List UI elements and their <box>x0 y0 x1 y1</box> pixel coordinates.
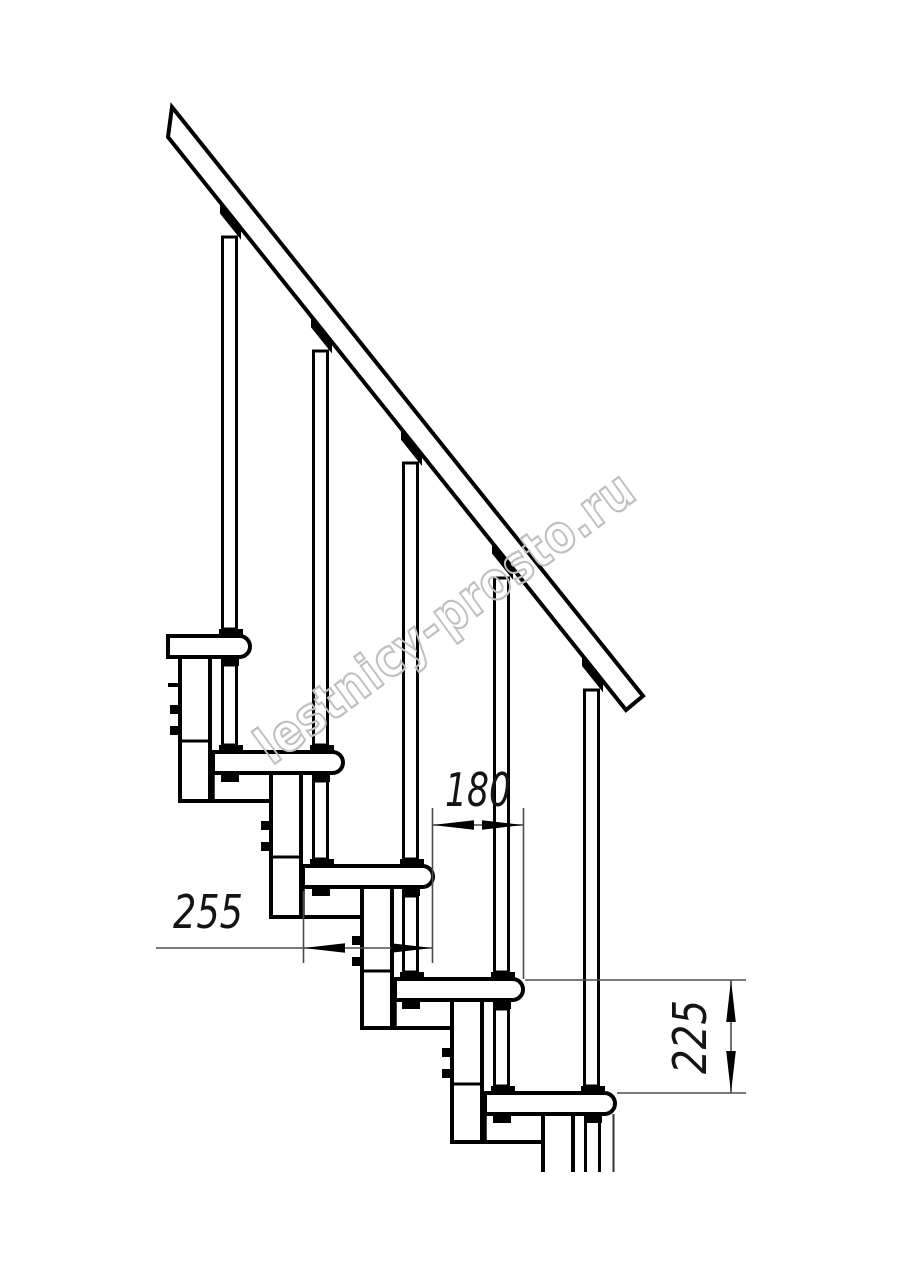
stringer-module <box>180 657 210 801</box>
rod-foot <box>219 745 243 752</box>
stringer-module-cut <box>543 1114 573 1172</box>
rod-foot <box>219 629 243 636</box>
tread <box>303 866 433 887</box>
rod-nut <box>221 658 239 666</box>
stringer-module <box>362 887 392 1028</box>
bolt <box>442 1048 453 1057</box>
drawing-page: 180 255 225 lestnicy-prosto.ru <box>0 0 914 1280</box>
dimension-label-run: 180 <box>445 763 511 817</box>
rod-foot <box>400 859 424 866</box>
tread <box>485 1093 615 1114</box>
tread <box>395 979 523 1000</box>
stringer-module <box>271 773 301 917</box>
rod-nut <box>402 1001 420 1009</box>
rod-nut <box>584 1115 602 1123</box>
arrowhead-up <box>726 980 736 1022</box>
bolt <box>261 821 272 830</box>
rod-nut <box>312 774 330 782</box>
bolt <box>170 705 181 714</box>
bolt <box>261 842 272 851</box>
arrowhead-left <box>433 820 475 830</box>
baluster <box>223 237 237 629</box>
baluster-extension <box>223 665 237 745</box>
rod-nut <box>493 1115 511 1123</box>
baluster <box>585 690 599 1086</box>
arrowhead-left <box>304 943 346 953</box>
rod-nut <box>402 888 420 896</box>
rod-nut <box>312 888 330 896</box>
bolt <box>170 726 181 735</box>
arrowhead-down <box>726 1051 736 1093</box>
dimension-label-rise: 225 <box>663 1000 717 1074</box>
baluster-extension <box>404 896 418 972</box>
rod-nut <box>493 1001 511 1009</box>
staircase-drawing: 180 255 225 lestnicy-prosto.ru <box>0 0 914 1280</box>
rod-foot <box>491 972 515 979</box>
baluster-extension <box>314 781 328 859</box>
baluster-extension <box>495 1009 509 1086</box>
rod-foot <box>491 1086 515 1093</box>
rod-foot <box>400 972 424 979</box>
dimension-label-depth: 255 <box>173 885 243 939</box>
baluster-extension-cut <box>586 1122 600 1172</box>
bolt <box>352 957 363 966</box>
rod-foot <box>581 1086 605 1093</box>
tread <box>168 636 250 657</box>
bolt <box>442 1069 453 1078</box>
bolt <box>352 936 363 945</box>
stringer-module <box>452 1000 482 1142</box>
rod-nut <box>221 774 239 782</box>
rod-foot <box>310 859 334 866</box>
